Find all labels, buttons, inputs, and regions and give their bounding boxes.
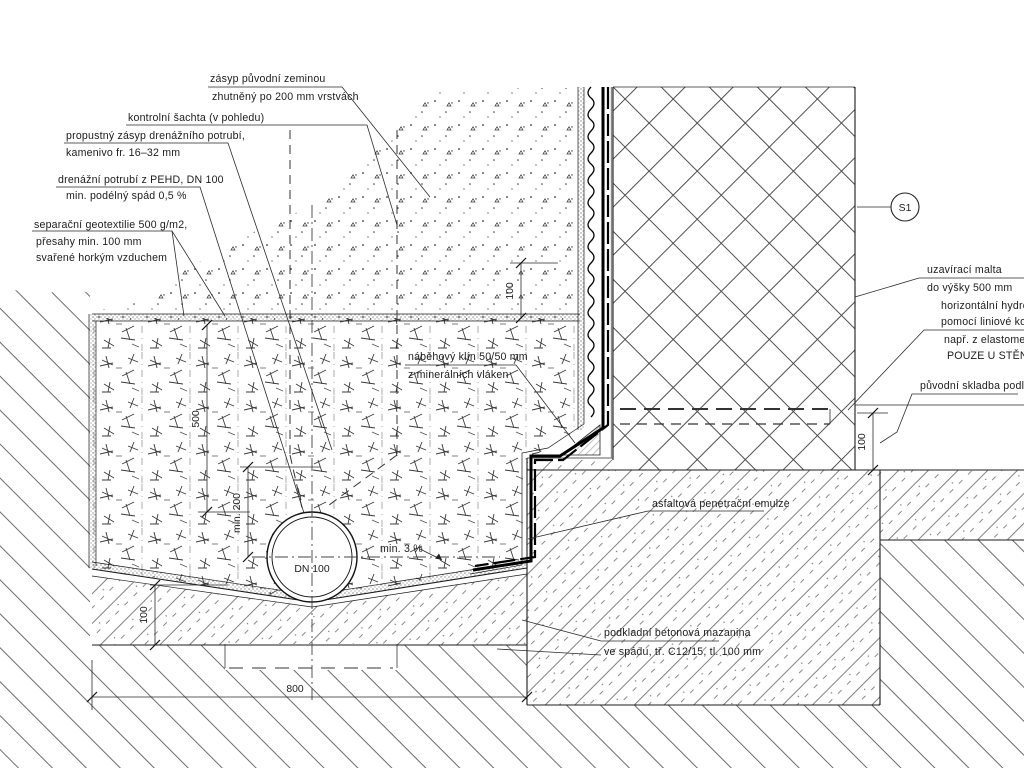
section-mark: S1	[857, 193, 919, 221]
svg-text:kontrolní šachta (v pohledu): kontrolní šachta (v pohledu)	[128, 112, 264, 124]
svg-text:z minerálních vláken: z minerálních vláken	[408, 369, 509, 381]
svg-text:ve spádu, tř. C12/15, tl. 100: ve spádu, tř. C12/15, tl. 100 mm	[604, 646, 761, 658]
pipe-dn-label: DN 100	[294, 564, 329, 575]
dim-floor-100: 100	[857, 408, 888, 475]
svg-text:horizontální hydroizolační: horizontální hydroizolační	[941, 300, 1024, 312]
svg-text:pomocí liniové kontaktní: pomocí liniové kontaktní	[941, 316, 1024, 328]
svg-text:původní skladba podlahy: původní skladba podlahy	[920, 380, 1024, 392]
label-floor: původní skladba podlahy	[880, 380, 1024, 443]
svg-text:asfaltová penetrační emulze: asfaltová penetrační emulze	[652, 498, 790, 510]
svg-text:propustný zásyp drenážního pot: propustný zásyp drenážního potrubí,	[66, 130, 245, 142]
pipe-bedding-notch	[225, 644, 397, 670]
svg-text:min. 3 %: min. 3 %	[380, 543, 423, 555]
svg-text:500: 500	[191, 410, 202, 428]
svg-text:např. z elastomerových: např. z elastomerových	[944, 334, 1024, 346]
svg-text:náběhový klín 50/50 mm: náběhový klín 50/50 mm	[408, 351, 528, 363]
label-mortar: uzavírací malta do výšky 500 mm	[855, 264, 1024, 297]
svg-text:min. 200: min. 200	[232, 493, 243, 533]
svg-text:POUZE U STĚNY SKLEPA: POUZE U STĚNY SKLEPA	[947, 349, 1024, 362]
dimple-membrane	[588, 87, 594, 417]
svg-text:drenážní potrubí z PEHD, DN 10: drenážní potrubí z PEHD, DN 100	[58, 174, 224, 186]
svg-text:zhutněný po 200 mm vrstvách: zhutněný po 200 mm vrstvách	[212, 91, 359, 103]
svg-text:zásyp původní zeminou: zásyp původní zeminou	[210, 73, 326, 85]
wall-region	[613, 87, 855, 470]
svg-text:podkladní betonová mazanina: podkladní betonová mazanina	[604, 627, 751, 639]
svg-text:min. podélný spád 0,5 %: min. podélný spád 0,5 %	[66, 190, 187, 202]
svg-text:100: 100	[857, 433, 868, 451]
svg-text:uzavírací malta: uzavírací malta	[927, 264, 1002, 276]
section-mark-text: S1	[899, 203, 912, 214]
svg-text:do výšky 500 mm: do výšky 500 mm	[927, 282, 1012, 294]
svg-text:kamenivo fr. 16–32 mm: kamenivo fr. 16–32 mm	[66, 147, 180, 159]
construction-detail-drawing: DN 100 100 500 min. 200	[0, 0, 1024, 768]
svg-text:800: 800	[286, 684, 304, 695]
svg-text:svařené horkým vzduchem: svařené horkým vzduchem	[36, 252, 167, 264]
svg-text:100: 100	[505, 282, 516, 300]
drawing-canvas: DN 100 100 500 min. 200	[0, 0, 1024, 768]
label-injection: horizontální hydroizolační pomocí liniov…	[848, 300, 1024, 410]
svg-text:přesahy min. 100 mm: přesahy min. 100 mm	[36, 236, 142, 248]
svg-text:separační geotextilie 500 g/m2: separační geotextilie 500 g/m2,	[34, 219, 187, 231]
svg-text:100: 100	[139, 606, 150, 624]
